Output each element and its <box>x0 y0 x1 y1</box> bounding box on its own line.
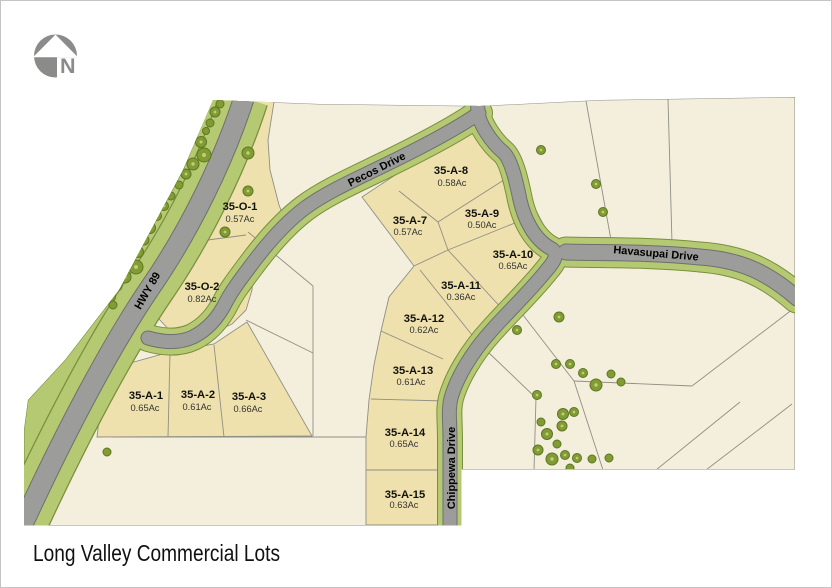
svg-text:0.82Ac: 0.82Ac <box>188 294 217 304</box>
svg-text:0.62Ac: 0.62Ac <box>410 325 439 335</box>
svg-text:35-A-13: 35-A-13 <box>393 365 433 377</box>
svg-text:35-O-1: 35-O-1 <box>223 201 258 213</box>
svg-text:35-A-10: 35-A-10 <box>493 249 533 261</box>
svg-text:N: N <box>60 54 76 78</box>
svg-text:0.65Ac: 0.65Ac <box>390 439 419 449</box>
svg-text:0.50Ac: 0.50Ac <box>468 220 497 230</box>
svg-text:35-A-3: 35-A-3 <box>232 391 266 403</box>
svg-text:0.65Ac: 0.65Ac <box>131 403 160 413</box>
svg-text:0.65Ac: 0.65Ac <box>499 261 528 271</box>
svg-text:0.57Ac: 0.57Ac <box>226 214 255 224</box>
svg-text:0.36Ac: 0.36Ac <box>447 292 476 302</box>
svg-text:35-O-2: 35-O-2 <box>185 281 220 293</box>
svg-text:0.58Ac: 0.58Ac <box>438 178 467 188</box>
svg-text:0.61Ac: 0.61Ac <box>397 377 426 387</box>
svg-text:0.63Ac: 0.63Ac <box>390 500 419 510</box>
svg-text:35-A-7: 35-A-7 <box>393 215 427 227</box>
svg-text:Chippewa Drive: Chippewa Drive <box>446 427 458 510</box>
svg-text:35-A-11: 35-A-11 <box>441 280 481 292</box>
svg-text:35-A-2: 35-A-2 <box>181 389 215 401</box>
svg-text:35-A-12: 35-A-12 <box>404 313 444 325</box>
svg-text:35-A-1: 35-A-1 <box>129 390 163 402</box>
svg-text:0.61Ac: 0.61Ac <box>183 402 212 412</box>
svg-text:0.57Ac: 0.57Ac <box>394 227 423 237</box>
svg-text:35-A-8: 35-A-8 <box>434 165 468 177</box>
svg-text:35-A-9: 35-A-9 <box>465 208 499 220</box>
svg-text:0.66Ac: 0.66Ac <box>234 404 263 414</box>
svg-text:Long Valley Commercial Lots: Long Valley Commercial Lots <box>33 540 280 566</box>
svg-text:35-A-14: 35-A-14 <box>385 427 426 439</box>
